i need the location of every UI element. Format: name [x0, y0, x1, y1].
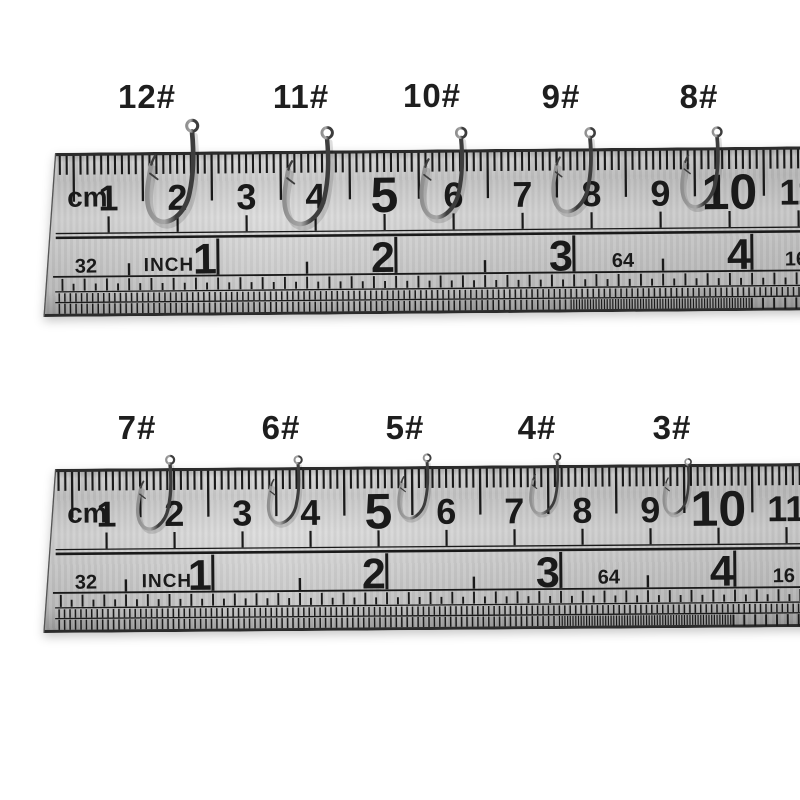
fraction-16-label: 16 [773, 565, 795, 587]
hook-size-label-6: 6# [262, 409, 301, 447]
hook-eye [456, 128, 466, 138]
hook-size-label-11: 11# [273, 78, 329, 116]
product-photo: 1234567891011cm123432INCH6416 1234567891… [0, 0, 800, 800]
cm-number-3: 3 [232, 492, 252, 533]
cm-number-2: 2 [167, 177, 187, 218]
fraction-64-label: 64 [598, 566, 621, 588]
hook-eye [586, 128, 595, 137]
cm-number-6: 6 [443, 174, 463, 215]
fish-hooks-layer [0, 0, 800, 800]
cm-number-6: 6 [436, 491, 456, 532]
hook-size-label-7: 7# [118, 409, 157, 447]
fraction-64-label: 64 [612, 250, 635, 272]
comb-64ths [559, 615, 730, 626]
hook-size-label-8: 8# [680, 78, 719, 116]
cm-number-8: 8 [572, 490, 592, 531]
hook-size-label-5: 5# [386, 409, 425, 447]
cm-unit-label: cm [67, 497, 108, 528]
ruler-top-edge [55, 464, 800, 470]
ruler-bottom-markings: 1234567891011cm123432INCH6416 [42, 463, 800, 633]
ladder-line-3 [55, 613, 800, 619]
cm-number-ticks [109, 210, 799, 232]
cm-number-11: 11 [779, 171, 800, 212]
fraction-32-label: 32 [75, 256, 97, 278]
inch-unit-label: INCH [144, 255, 195, 276]
cm-number-4: 4 [305, 176, 325, 217]
hook-size-label-10: 10# [403, 77, 461, 115]
cm-unit-label: cm [67, 181, 108, 212]
cm-number-3: 3 [236, 176, 256, 217]
cm-number-9: 9 [640, 489, 660, 530]
ruler-body: 1234567891011cm123432INCH6416 [42, 146, 800, 317]
fraction-32-label: 32 [75, 572, 97, 594]
hook-eye [187, 120, 198, 131]
fraction-16-label: 16 [785, 248, 800, 270]
hook-eye [713, 128, 722, 137]
hook-eye [295, 456, 302, 463]
hook-size-label-9: 9# [542, 78, 581, 116]
hook-eye [554, 454, 560, 460]
hook-size-label-12: 12# [118, 78, 176, 116]
ruler-left-end-edge [42, 153, 56, 317]
hook-eye [424, 454, 431, 461]
cm-number-9: 9 [650, 173, 670, 214]
ruler-top-markings: 1234567891011cm123432INCH6416 [42, 146, 800, 317]
ladder-line-2 [55, 602, 800, 608]
hook-size-label-3: 3# [653, 409, 692, 447]
hook-eye [166, 456, 174, 464]
cm-number-4: 4 [300, 492, 320, 533]
cm-number-8: 8 [581, 173, 601, 214]
hook-eye [322, 128, 332, 138]
cm-number-11: 11 [767, 488, 800, 529]
ruler-left-end-edge [42, 469, 56, 633]
ruler-body: 1234567891011cm123432INCH6416 [42, 463, 800, 633]
cm-number-7: 7 [504, 490, 524, 531]
inch-unit-label: INCH [142, 571, 193, 592]
comb-64ths [571, 298, 749, 310]
cm-number-2: 2 [164, 493, 184, 534]
cm-number-7: 7 [512, 174, 532, 215]
hook-size-label-4: 4# [518, 409, 557, 447]
